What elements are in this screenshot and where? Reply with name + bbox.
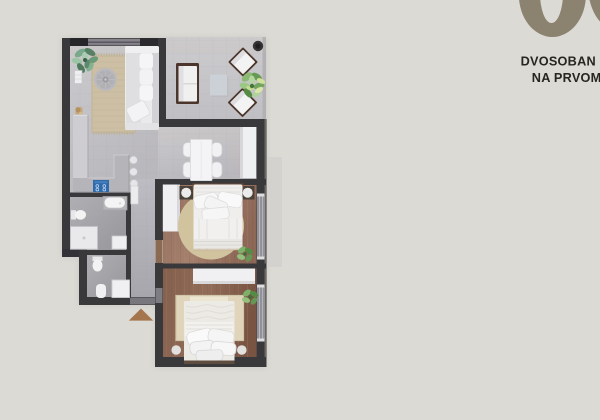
svg-text:NA PRVOM SPRATU: NA PRVOM SPRATU: [532, 71, 600, 85]
svg-text:DVOSOBAN STAN: DVOSOBAN STAN: [521, 55, 600, 69]
